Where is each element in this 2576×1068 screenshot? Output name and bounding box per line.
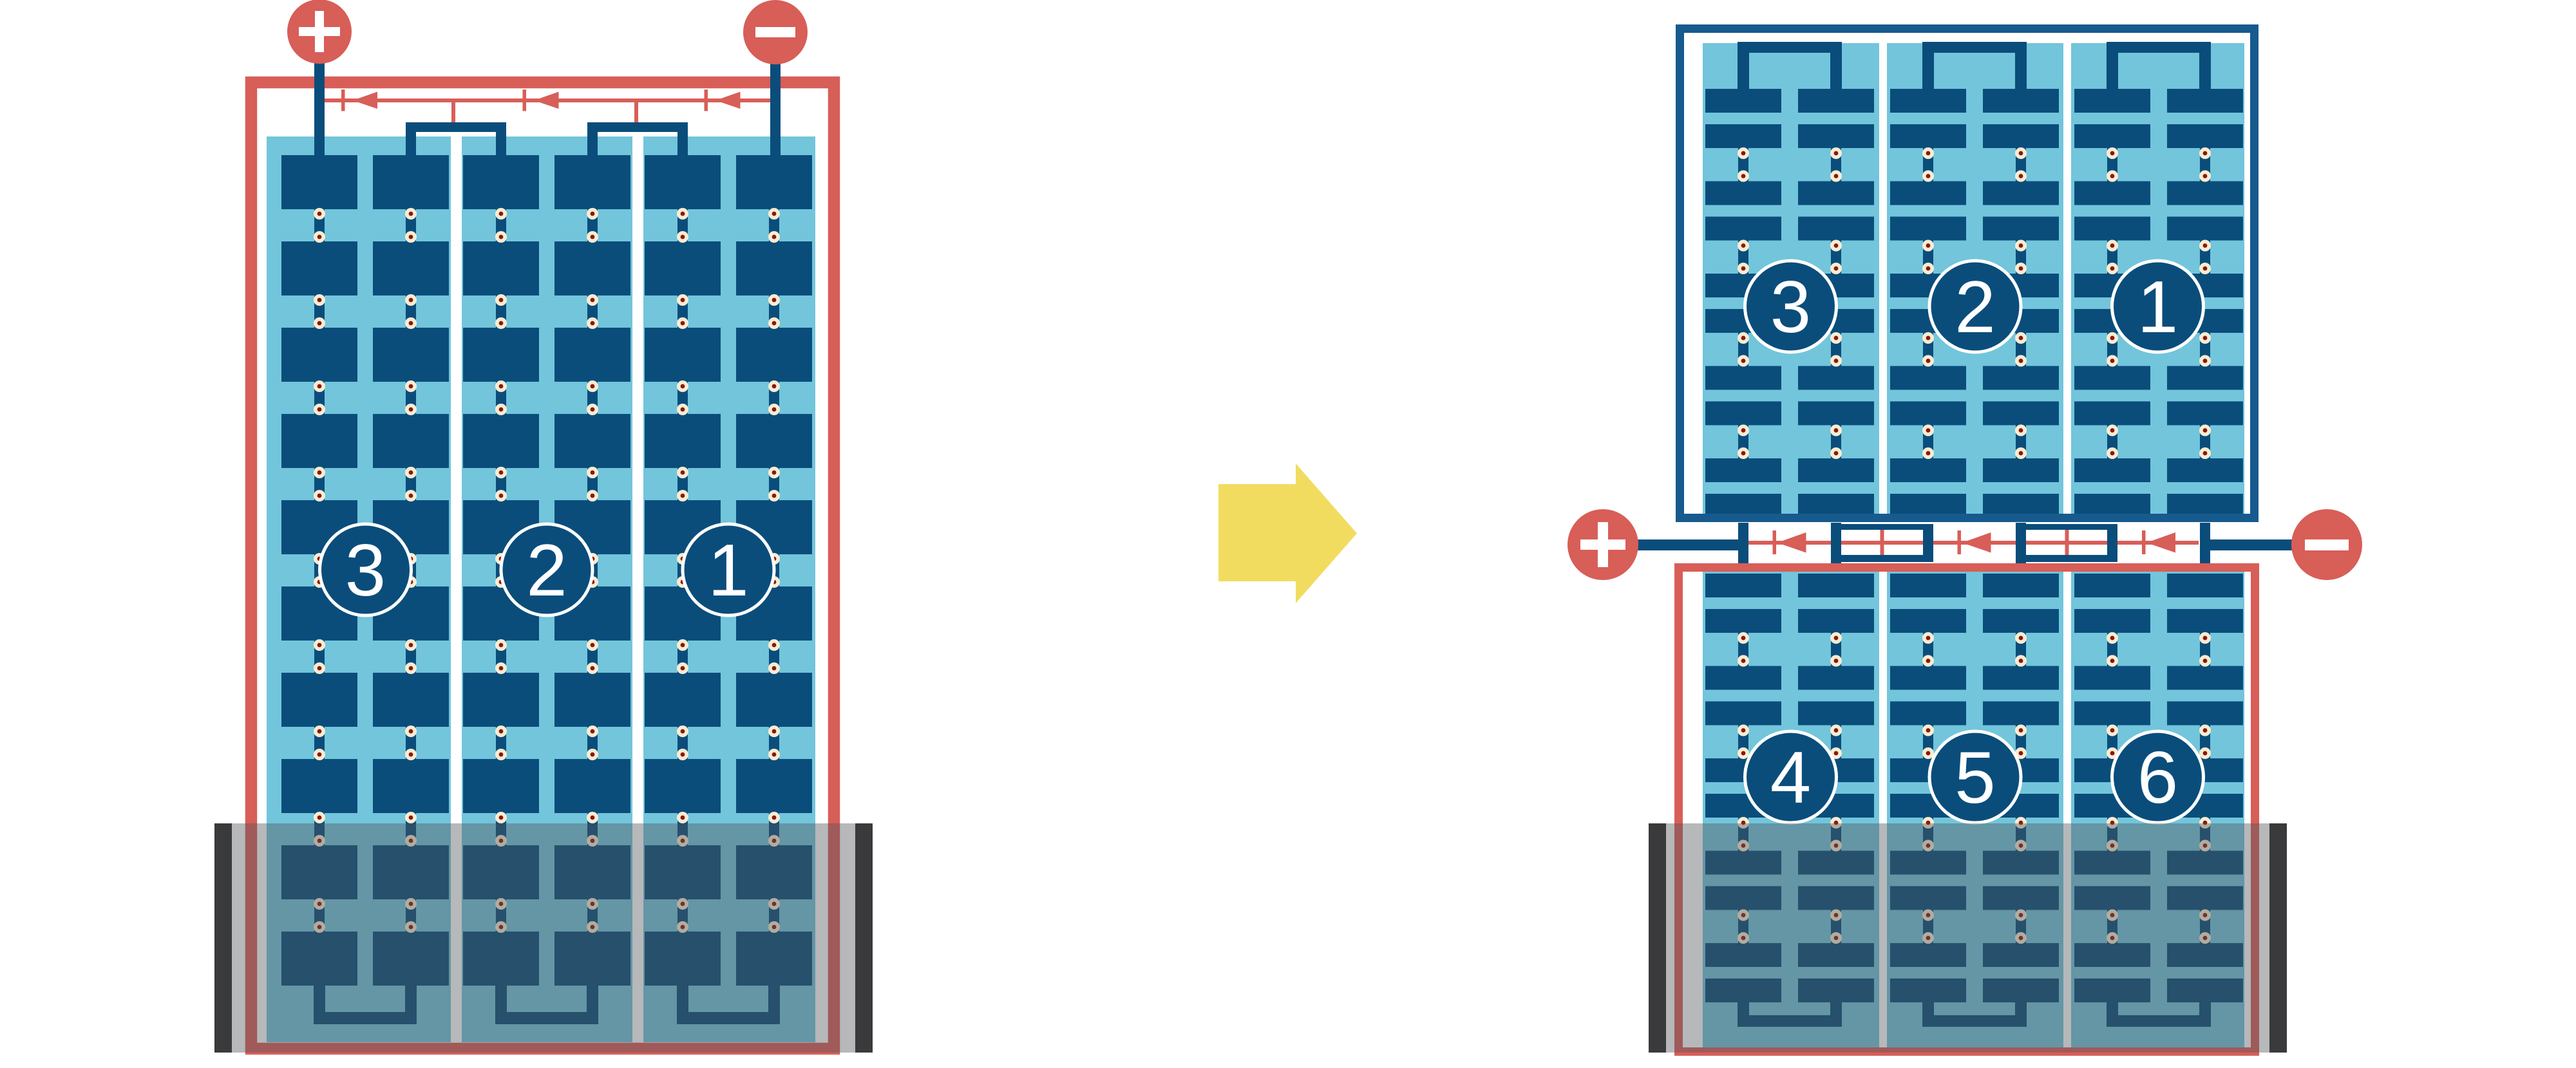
svg-text:4: 4 <box>1770 737 1811 819</box>
svg-text:5: 5 <box>1955 737 1995 819</box>
svg-text:3: 3 <box>345 530 386 612</box>
svg-text:1: 1 <box>2137 267 2178 348</box>
svg-text:3: 3 <box>1770 267 1811 348</box>
svg-text:2: 2 <box>1955 267 1995 348</box>
svg-text:1: 1 <box>708 530 748 612</box>
svg-text:2: 2 <box>526 530 567 612</box>
svg-text:6: 6 <box>2137 737 2178 819</box>
